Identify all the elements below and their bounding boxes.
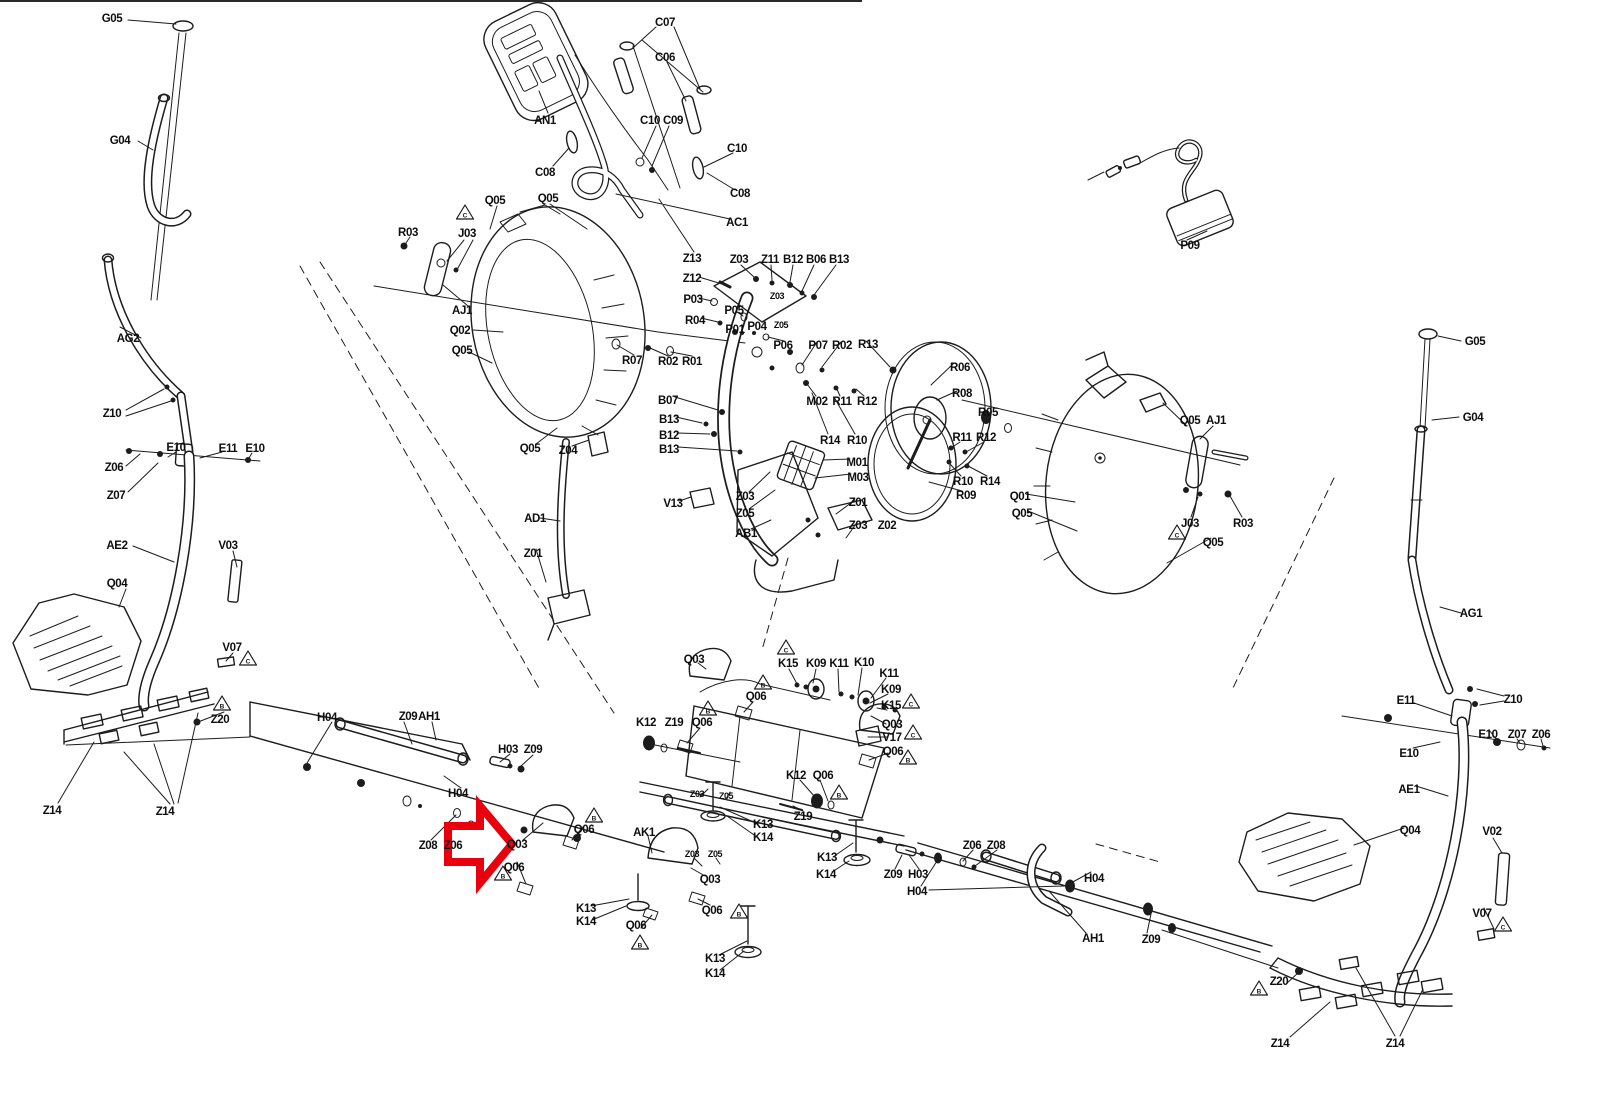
part-label-r05: R05 — [978, 407, 999, 419]
part-label-ag1: AG1 — [1460, 608, 1483, 620]
part-label-j03: J03 — [1181, 518, 1199, 530]
part-label-r04: R04 — [685, 315, 706, 327]
warning-triangle-icon: B — [632, 935, 649, 950]
left-handlebar-assembly — [103, 21, 261, 706]
svg-text:B: B — [592, 816, 597, 823]
warning-triangle-icon: B — [214, 696, 231, 711]
part-label-z03: Z03 — [730, 254, 749, 266]
part-label-z13: Z13 — [683, 253, 702, 265]
part-label-q01: Q01 — [1010, 491, 1032, 503]
part-label-ah1: AH1 — [418, 711, 441, 723]
part-label-r14: R14 — [820, 435, 841, 447]
part-label-b13: B13 — [659, 414, 679, 426]
part-label-z09: Z09 — [884, 869, 903, 881]
part-label-k13: K13 — [705, 953, 725, 965]
warning-triangle-icon: C — [778, 640, 795, 655]
part-label-h03: H03 — [908, 869, 928, 881]
part-label-k11: K11 — [829, 658, 849, 670]
part-label-v07: V07 — [222, 642, 241, 654]
part-label-q05: Q05 — [452, 345, 474, 357]
part-label-h04: H04 — [317, 712, 338, 724]
part-label-r13: R13 — [858, 339, 878, 351]
part-label-v13: V13 — [663, 498, 682, 510]
part-label-g04: G04 — [110, 135, 132, 147]
part-label-z14: Z14 — [1271, 1038, 1291, 1050]
part-label-p04: P04 — [747, 321, 767, 333]
part-label-z07: Z07 — [1508, 729, 1527, 741]
part-label-q06: Q06 — [813, 770, 834, 782]
part-label-z14: Z14 — [156, 806, 176, 818]
part-label-q06: Q06 — [692, 717, 713, 729]
part-label-g05: G05 — [102, 13, 124, 25]
part-label-r03: R03 — [1233, 518, 1253, 530]
part-label-z11: Z11 — [761, 254, 780, 266]
part-label-e10: E10 — [245, 443, 264, 455]
part-label-p05: P05 — [724, 305, 744, 317]
part-label-z02: Z02 — [878, 520, 897, 532]
main-frame-assembly — [690, 262, 897, 592]
part-label-q06: Q06 — [504, 862, 525, 874]
part-label-q05: Q05 — [485, 195, 507, 207]
part-label-q05: Q05 — [1180, 415, 1202, 427]
part-label-aj1: AJ1 — [1206, 415, 1227, 427]
part-label-z20: Z20 — [211, 714, 230, 726]
part-label-q05: Q05 — [520, 443, 542, 455]
svg-text:B: B — [837, 793, 842, 800]
part-label-r02: R02 — [832, 340, 852, 352]
diagram-canvas: CCCBCBCCBBCBBBBBB G05G04AG2Z10E10E11E10Z… — [0, 0, 1599, 1100]
part-label-r01: R01 — [682, 356, 703, 368]
part-label-p07: P07 — [808, 340, 827, 352]
power-adapter — [1088, 142, 1235, 248]
warning-triangle-icon: C — [905, 725, 922, 740]
part-label-z09: Z09 — [399, 711, 418, 723]
part-label-k12: K12 — [786, 770, 806, 782]
svg-text:B: B — [906, 758, 911, 765]
part-label-e11: E11 — [219, 443, 239, 455]
part-label-k12: K12 — [636, 717, 656, 729]
part-label-z05: Z05 — [708, 849, 723, 859]
part-label-aj1: AJ1 — [452, 305, 473, 317]
part-label-q03: Q03 — [700, 874, 721, 886]
svg-text:B: B — [1257, 989, 1262, 996]
part-label-q03: Q03 — [684, 654, 705, 666]
part-label-c10: C10 — [640, 115, 660, 127]
warning-triangle-icon: C — [240, 651, 257, 666]
part-label-h04: H04 — [907, 886, 928, 898]
part-label-r11: R11 — [952, 432, 972, 444]
part-label-ak1: AK1 — [633, 827, 656, 839]
part-label-z09: Z09 — [1142, 934, 1161, 946]
part-label-z19: Z19 — [665, 717, 684, 729]
part-label-v02: V02 — [1482, 826, 1501, 838]
warning-triangle-icon: B — [586, 808, 603, 823]
part-label-q02: Q02 — [450, 325, 471, 337]
part-label-r08: R08 — [952, 388, 973, 400]
part-label-z08: Z08 — [987, 840, 1007, 852]
part-label-z14: Z14 — [43, 805, 63, 817]
part-label-z03: Z03 — [770, 291, 785, 301]
part-label-q05: Q05 — [1012, 508, 1034, 520]
part-label-z10: Z10 — [1504, 694, 1523, 706]
part-label-q06: Q06 — [883, 746, 904, 758]
part-label-e11: E11 — [1397, 695, 1417, 707]
part-label-k15: K15 — [778, 658, 799, 670]
part-label-k09: K09 — [881, 684, 901, 696]
part-label-q03: Q03 — [882, 719, 903, 731]
part-label-p01: P01 — [725, 324, 745, 336]
seat-arm — [548, 432, 608, 640]
part-label-b13: B13 — [829, 254, 849, 266]
part-label-p03: P03 — [683, 294, 702, 306]
svg-text:C: C — [911, 733, 916, 740]
part-label-ae2: AE2 — [106, 540, 127, 552]
part-label-q06: Q06 — [702, 905, 723, 917]
part-label-h03: H03 — [498, 744, 518, 756]
part-label-c08: C08 — [730, 188, 751, 200]
svg-text:C: C — [784, 648, 789, 655]
svg-text:C: C — [246, 659, 251, 666]
svg-text:C: C — [1175, 533, 1180, 540]
part-label-r03: R03 — [398, 227, 418, 239]
part-label-r07: R07 — [622, 355, 642, 367]
part-label-p06: P06 — [773, 340, 792, 352]
svg-text:B: B — [737, 912, 742, 919]
part-label-m02: M02 — [806, 396, 827, 408]
warning-triangle-icon: B — [831, 785, 848, 800]
part-label-z03: Z03 — [690, 789, 705, 799]
part-label-z06: Z06 — [105, 462, 124, 474]
part-label-z04: Z04 — [559, 445, 579, 457]
leader-lines — [58, 20, 1543, 1037]
part-label-r02: R02 — [658, 356, 678, 368]
part-label-v03: V03 — [218, 540, 237, 552]
part-label-z03: Z03 — [849, 520, 868, 532]
part-label-p09: P09 — [1180, 240, 1199, 252]
part-label-q05: Q05 — [538, 193, 560, 205]
part-label-q06: Q06 — [574, 824, 595, 836]
part-label-z12: Z12 — [683, 273, 702, 285]
part-label-z03: Z03 — [736, 491, 755, 503]
part-label-z05: Z05 — [719, 791, 734, 801]
part-label-e10: E10 — [1399, 748, 1418, 760]
svg-text:C: C — [909, 702, 914, 709]
part-label-z06: Z06 — [963, 840, 982, 852]
svg-text:C: C — [1501, 925, 1506, 932]
part-label-r10: R10 — [847, 435, 867, 447]
part-label-k15: K15 — [881, 700, 902, 712]
part-label-k14: K14 — [705, 968, 726, 980]
svg-text:B: B — [220, 704, 225, 711]
part-label-q06: Q06 — [626, 920, 647, 932]
part-label-h04: H04 — [448, 788, 469, 800]
parts-diagram-page: CCCBCBCCBBCBBBBBB G05G04AG2Z10E10E11E10Z… — [0, 0, 1599, 1100]
part-label-q03: Q03 — [507, 839, 528, 851]
part-label-r12: R12 — [857, 396, 877, 408]
warning-triangle-icon: C — [457, 205, 474, 220]
warning-triangle-icon: C — [903, 694, 920, 709]
part-label-r10: R10 — [953, 476, 973, 488]
right-cover-disc — [1034, 352, 1246, 601]
part-label-k09: K09 — [806, 658, 826, 670]
part-label-z01: Z01 — [849, 497, 869, 509]
svg-text:C: C — [463, 213, 468, 220]
part-label-z14: Z14 — [1386, 1038, 1406, 1050]
part-label-z09: Z09 — [524, 744, 543, 756]
part-label-q05: Q05 — [1203, 537, 1225, 549]
svg-text:B: B — [501, 874, 506, 881]
part-label-ae1: AE1 — [1398, 784, 1420, 796]
part-label-k13: K13 — [817, 852, 837, 864]
part-label-v07: V07 — [1472, 908, 1491, 920]
part-label-r12: R12 — [976, 432, 996, 444]
part-label-h04: H04 — [1084, 873, 1105, 885]
part-label-an1: AN1 — [534, 115, 557, 127]
warning-triangle-icon: B — [1251, 981, 1268, 996]
part-label-r14: R14 — [980, 476, 1001, 488]
part-label-b13: B13 — [659, 444, 679, 456]
part-label-b07: B07 — [658, 395, 678, 407]
part-label-z01: Z01 — [524, 548, 544, 560]
part-label-b12: B12 — [783, 254, 803, 266]
part-label-g05: G05 — [1465, 336, 1487, 348]
part-label-b06: B06 — [806, 254, 826, 266]
part-label-k14: K14 — [753, 832, 774, 844]
part-label-c09: C09 — [663, 115, 683, 127]
part-label-z05: Z05 — [774, 320, 789, 330]
part-label-m03: M03 — [847, 472, 868, 484]
part-label-c10: C10 — [727, 143, 747, 155]
part-label-z05: Z05 — [736, 508, 756, 520]
svg-text:B: B — [761, 683, 766, 690]
part-label-b12: B12 — [659, 430, 679, 442]
part-label-c08: C08 — [535, 167, 556, 179]
svg-text:B: B — [638, 943, 643, 950]
part-label-r06: R06 — [950, 362, 970, 374]
part-label-ah1: AH1 — [1082, 933, 1105, 945]
part-label-z08: Z08 — [419, 840, 439, 852]
part-label-z20: Z20 — [1270, 976, 1289, 988]
part-label-j03: J03 — [458, 228, 476, 240]
part-label-c07: C07 — [655, 17, 675, 29]
part-label-m01: M01 — [846, 457, 868, 469]
part-label-k14: K14 — [816, 869, 837, 881]
part-label-r09: R09 — [956, 490, 976, 502]
part-label-g04: G04 — [1463, 412, 1485, 424]
part-label-z19: Z19 — [794, 811, 813, 823]
right-handlebar-assembly — [1342, 329, 1550, 1002]
part-label-z06: Z06 — [444, 840, 463, 852]
flywheel-assembly — [868, 342, 1240, 521]
part-label-r11: R11 — [832, 396, 852, 408]
top-border — [0, 0, 862, 2]
part-label-q04: Q04 — [107, 578, 129, 590]
part-label-k10: K10 — [854, 657, 874, 669]
part-label-ag2: AG2 — [117, 333, 139, 345]
part-label-c06: C06 — [655, 52, 675, 64]
part-label-z10: Z10 — [103, 408, 122, 420]
part-labels-layer: G05G04AG2Z10E10E11E10Z06Z07AE2V03Q04V07Z… — [43, 13, 1551, 1050]
part-label-ac1: AC1 — [726, 217, 749, 229]
part-label-z06: Z06 — [1532, 729, 1551, 741]
part-label-k11: K11 — [879, 668, 899, 680]
part-label-e10: E10 — [166, 442, 185, 454]
part-label-q06: Q06 — [746, 691, 767, 703]
part-label-k13: K13 — [753, 819, 773, 831]
part-label-v17: V17 — [882, 732, 901, 744]
part-label-ad1: AD1 — [524, 513, 547, 525]
part-label-q04: Q04 — [1400, 825, 1422, 837]
part-label-ab1: AB1 — [735, 528, 758, 540]
svg-text:B: B — [706, 709, 711, 716]
part-label-e10: E10 — [1478, 729, 1497, 741]
part-label-z07: Z07 — [107, 490, 126, 502]
warning-triangle-icon: C — [1495, 917, 1512, 932]
part-label-k13: K13 — [576, 903, 596, 915]
part-label-z03: Z03 — [685, 849, 700, 859]
part-label-k14: K14 — [576, 916, 597, 928]
